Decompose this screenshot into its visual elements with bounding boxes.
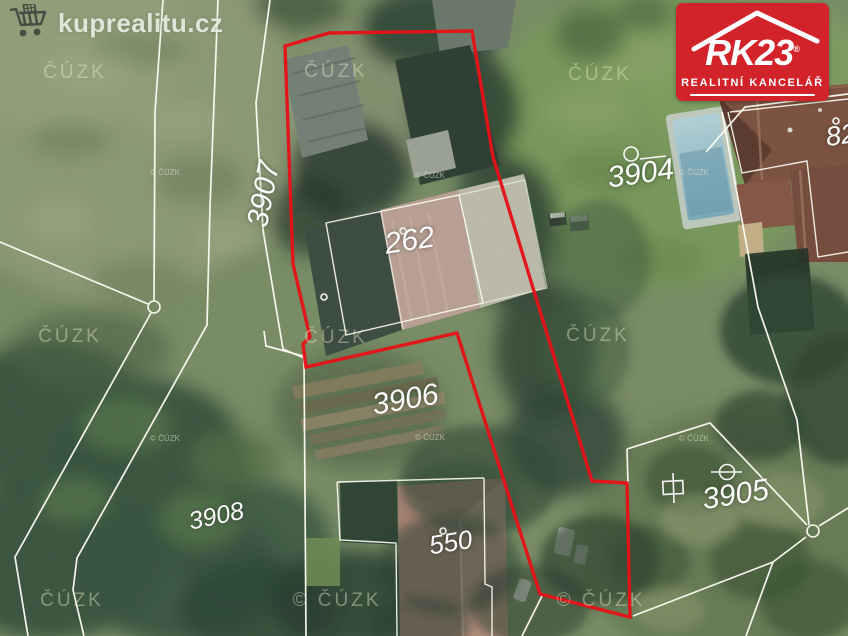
site-logo-text: kuprealitu.cz xyxy=(58,8,223,39)
cuzk-watermark-copyright: © ČÚZK xyxy=(557,589,646,611)
site-watermark-logo: kuprealitu.cz xyxy=(8,4,223,42)
cuzk-watermark-small: © ČÚZK xyxy=(150,434,181,443)
cadastral-map-image[interactable]: 3907 3904 3906 3908 3905 262 550 82 ČÚZK… xyxy=(0,0,848,636)
cuzk-watermark: ČÚZK xyxy=(38,325,102,347)
registered-trademark-icon: ® xyxy=(793,44,800,54)
cuzk-watermark-small: © ČÚZK xyxy=(679,168,710,177)
cuzk-watermark: ČÚZK xyxy=(568,63,632,85)
cuzk-watermark: ČÚZK xyxy=(304,60,368,82)
agency-name: RK23 xyxy=(705,32,793,73)
cuzk-watermark-small: © ČÚZK xyxy=(415,171,446,180)
cuzk-watermark-copyright: © ČÚZK xyxy=(293,589,382,611)
shopping-cart-icon xyxy=(8,4,50,42)
cuzk-watermark-small: © ČÚZK xyxy=(150,168,181,177)
cuzk-watermark: ČÚZK xyxy=(566,324,630,346)
agency-logo-underline xyxy=(690,94,815,96)
agency-logo: RK23® REALITNÍ KANCELÁŘ xyxy=(676,3,829,101)
cuzk-watermark-small: © ČÚZK xyxy=(679,434,710,443)
cuzk-watermark: ČÚZK xyxy=(304,326,368,348)
cuzk-watermark: ČÚZK xyxy=(43,61,107,83)
agency-name-row: RK23® xyxy=(676,35,829,71)
cuzk-watermark-small: © ČÚZK xyxy=(415,433,446,442)
building-label-82: 82 xyxy=(824,118,848,152)
agency-subtitle: REALITNÍ KANCELÁŘ xyxy=(676,77,829,89)
cuzk-watermark: ČÚZK xyxy=(40,589,104,611)
